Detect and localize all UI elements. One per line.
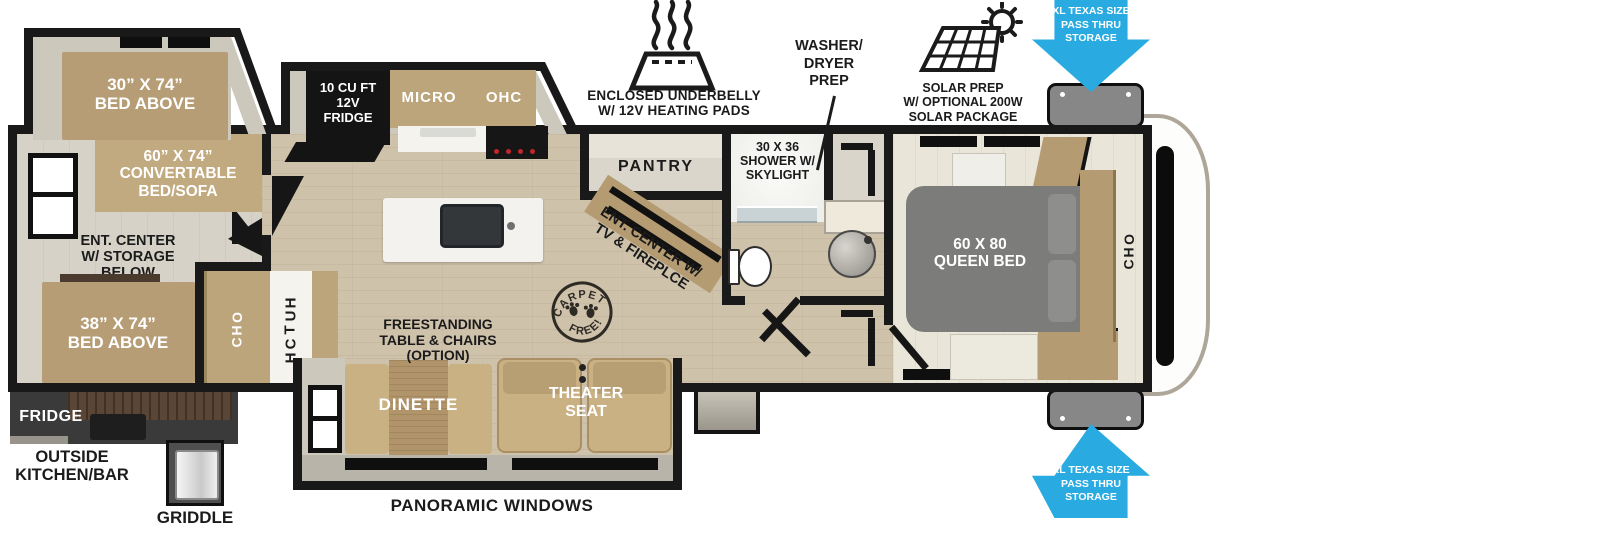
wall-segment <box>884 134 893 325</box>
vanity-counter <box>824 200 888 234</box>
freestanding-label: FREESTANDING TABLE & CHAIRS (OPTION) <box>358 317 518 364</box>
cooktop-knob <box>494 149 499 154</box>
griddle <box>166 440 224 506</box>
cooktop-knob <box>518 149 523 154</box>
headboard <box>1080 170 1116 342</box>
shower-label: 30 X 36 SHOWER W/ SKYLIGHT <box>726 140 829 182</box>
window-pane <box>33 158 73 192</box>
pillow <box>1048 260 1076 322</box>
outside-kitchen-label: OUTSIDE KITCHEN/BAR <box>0 448 144 485</box>
passthru-arrow-down: XL TEXAS SIZE PASS THRU STORAGE <box>1032 0 1150 92</box>
wall-segment <box>24 28 33 134</box>
bedroom-ohc-label: OHC <box>1116 218 1142 286</box>
passthru-door-top <box>1047 83 1144 128</box>
heating-pads-icon <box>614 0 730 92</box>
rv-floorplan: FRIDGE OUTSIDE KITCHEN/BAR GRIDDLE 60” X… <box>0 0 1600 533</box>
window <box>168 37 210 48</box>
bedroom-bench <box>950 334 1038 380</box>
shower-glass <box>737 206 817 223</box>
wall-segment <box>673 358 682 481</box>
passthru-arrow-up: XL TEXAS SIZE PASS THRU STORAGE <box>1032 424 1150 518</box>
vanity-faucet <box>864 236 872 244</box>
underbelly-label-1: ENCLOSED UNDERBELLY <box>562 88 786 103</box>
bedroom-bench <box>952 153 1006 187</box>
cooktop-knob <box>506 149 511 154</box>
wall-segment <box>722 296 745 305</box>
door-rivet <box>1060 416 1065 421</box>
window <box>28 153 78 239</box>
closet-bracket <box>841 143 873 150</box>
dinette-label: DINETTE <box>345 395 492 414</box>
door-rivet <box>1126 416 1131 421</box>
cooktop <box>486 126 548 159</box>
panoramic-windows-label: PANORAMIC WINDOWS <box>362 496 622 515</box>
window <box>120 37 162 48</box>
bunk-bed-30-label: 30” X 74” BED ABOVE <box>58 75 232 113</box>
cupholder <box>579 376 586 383</box>
cooktop-knob <box>530 149 535 154</box>
solar-label: SOLAR PREP W/ OPTIONAL 200W SOLAR PACKAG… <box>888 81 1038 124</box>
queen-bed-label: 60 X 80 QUEEN BED <box>910 236 1050 271</box>
wall-segment <box>8 125 17 392</box>
toilet-bowl <box>738 246 772 287</box>
window <box>920 136 977 147</box>
toilet <box>728 246 774 288</box>
ohc-left-label: OHC <box>222 295 252 365</box>
fridge-12v-label: 10 CU FT 12V FRIDGE <box>302 81 394 126</box>
convertible-bed-label: 60” X 74” CONVERTABLE BED/SOFA <box>88 148 268 200</box>
wall-segment <box>24 28 240 37</box>
underbelly-label-2: W/ 12V HEATING PADS <box>562 103 786 118</box>
window-pane <box>313 390 337 416</box>
kitchen-sink <box>420 128 476 137</box>
pillow <box>1048 194 1076 254</box>
griddle-plate <box>175 450 219 500</box>
island-faucet <box>507 222 515 230</box>
wall-segment <box>293 358 302 481</box>
island-sink <box>440 204 504 248</box>
kitchen-ohc-label: OHC <box>472 90 536 107</box>
wall-segment <box>800 296 893 305</box>
passthru-bottom-label: XL TEXAS SIZE PASS THRU STORAGE <box>1032 464 1150 505</box>
griddle-label: GRIDDLE <box>145 508 245 527</box>
wall-segment <box>1143 125 1152 392</box>
window <box>345 458 487 470</box>
pantry-shelf <box>589 134 722 158</box>
bed-38-label: 38” X 74” BED ABOVE <box>35 314 201 352</box>
window-pane <box>313 421 337 448</box>
passthru-door-bottom <box>1047 389 1144 430</box>
entry-step <box>694 390 760 434</box>
outside-kitchen-appliance <box>90 414 146 440</box>
cupholder <box>579 364 586 371</box>
theater-seat-label: THEATER SEAT <box>497 385 675 421</box>
wall-segment <box>281 62 290 134</box>
window <box>512 458 658 470</box>
window <box>984 136 1040 147</box>
paw-print <box>583 304 598 319</box>
closet-bracket <box>868 150 875 196</box>
micro-label: MICRO <box>392 90 466 107</box>
front-window <box>1156 146 1174 366</box>
pantry-label: PANTRY <box>592 158 720 176</box>
window-pane <box>33 197 73 234</box>
outside-fridge-label: FRIDGE <box>14 408 88 426</box>
door-rivet <box>1060 92 1065 97</box>
wall-segment <box>195 262 271 271</box>
door-rivet <box>1126 92 1131 97</box>
passthru-top-label: XL TEXAS SIZE PASS THRU STORAGE <box>1032 5 1150 46</box>
window <box>308 385 342 453</box>
solar-panel-icon <box>912 2 1028 82</box>
closet-bracket <box>868 318 875 366</box>
outside-step <box>10 436 68 444</box>
kitchen-island <box>383 198 543 262</box>
fridge-12v-front <box>284 142 386 162</box>
closet-bracket <box>841 310 873 317</box>
washer-dryer-label: WASHER/ DRYER PREP <box>779 38 879 91</box>
wall-segment <box>293 481 682 490</box>
